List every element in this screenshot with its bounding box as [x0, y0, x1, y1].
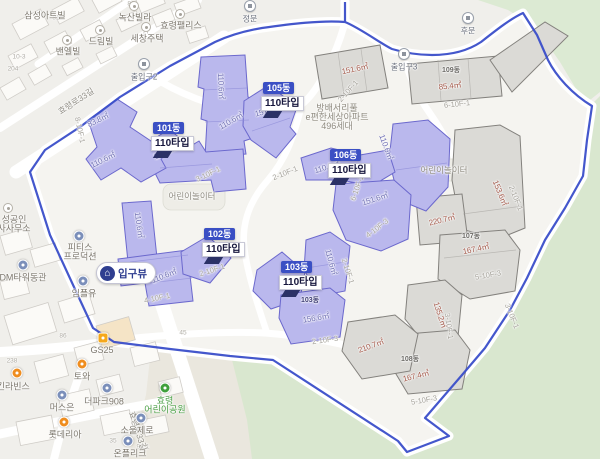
building-number-label: 107동: [462, 231, 480, 241]
poi-label: 효령: [157, 394, 174, 407]
tooltip-pointer: [263, 111, 282, 118]
building-tooltip-101동[interactable]: 101동110타입: [151, 118, 194, 158]
unit-road-label: 3-10F-1: [503, 302, 521, 330]
orange-poi-icon[interactable]: [12, 368, 23, 379]
dot-poi-icon[interactable]: [62, 35, 72, 45]
area-label: 151.6㎡: [361, 190, 390, 209]
unit-road-label: 5-10F-3: [474, 268, 501, 281]
area-label: 110.6㎡: [132, 211, 147, 239]
poi-label: 효령팰리스: [160, 19, 201, 32]
unit-road-label: 6-10F-1: [443, 98, 470, 110]
poi-label: 어린이공원: [144, 403, 185, 416]
poi-label: 롯데리아: [48, 428, 81, 441]
building-tooltip-105동[interactable]: 105동110타입: [261, 78, 304, 118]
blue-poi-icon[interactable]: [18, 260, 29, 271]
unit-road-label: 2-10F-1: [340, 257, 357, 285]
poi-label: 배스킨라빈스: [0, 380, 30, 393]
poi-label: 드림빌: [89, 35, 114, 48]
poi-label: 프로덕션: [63, 250, 96, 263]
poi-label: 피티스: [68, 241, 93, 254]
gate-label: 정문: [243, 14, 258, 25]
orange-poi-icon[interactable]: [77, 359, 88, 370]
area-label: 153.6㎡: [490, 179, 510, 208]
house-number-label: 10-3: [12, 54, 25, 61]
area-label: 167.4㎡: [462, 241, 491, 257]
unit-road-label: 4-10F-3: [364, 216, 390, 239]
tooltip-pointer: [330, 178, 349, 185]
blue-poi-icon[interactable]: [57, 390, 68, 401]
area-label: 220.7㎡: [428, 211, 457, 228]
unit-road-label: 5-10F-3: [410, 393, 437, 406]
orange-poi-icon[interactable]: [59, 417, 70, 428]
dot-poi-icon[interactable]: [175, 9, 185, 19]
area-label: 135.2㎡: [431, 301, 450, 330]
area-label: 110.6㎡: [89, 149, 117, 170]
unit-road-label: 2-10F-1: [507, 184, 525, 212]
entrance-view-pill[interactable]: ⌂ 입구뷰: [96, 262, 156, 284]
gate-icon[interactable]: [398, 48, 410, 60]
area-label: 85.4㎡: [438, 79, 462, 92]
poi-label: 더파크908: [84, 395, 124, 408]
unit-road-label: 4-10F-1: [143, 291, 171, 305]
entrance-pill-label: 입구뷰: [118, 266, 147, 281]
area-label: 110.6㎡: [215, 73, 227, 100]
building-tooltip-103동[interactable]: 103동110타입: [279, 257, 322, 297]
house-number-label: 90-1: [136, 444, 149, 451]
building-number-label: 108동: [401, 354, 419, 364]
gate-label: 출입구2: [131, 72, 158, 83]
tooltip-pointer: [204, 257, 223, 264]
blue-poi-icon[interactable]: [136, 413, 147, 424]
poi-label: DM타워동관: [0, 271, 47, 284]
blue-poi-icon[interactable]: [102, 383, 113, 394]
gate-icon[interactable]: [244, 0, 256, 12]
tooltip-type-label: 110타입: [328, 163, 371, 178]
area-label: 83.8㎡: [85, 110, 110, 130]
poi-label: 토와: [74, 370, 91, 383]
map-labels-layer: 110.6㎡151.6㎡110.6㎡110.6㎡83.8㎡110.6㎡110.6…: [0, 0, 600, 459]
house-number-label: 204: [8, 66, 19, 73]
unit-road-label: 3-10F-1: [194, 164, 222, 184]
building-tooltip-106동[interactable]: 106동110타입: [328, 145, 371, 185]
house-number-label: 86: [59, 333, 66, 340]
area-label: 110.6㎡: [376, 133, 395, 161]
unit-road-label: 3-10F-1: [443, 312, 456, 339]
playground-label: 어린이놀이터: [169, 190, 216, 202]
poi-label: 온플리크: [113, 447, 146, 459]
dot-poi-icon[interactable]: [3, 203, 13, 213]
gate-label: 출입구3: [391, 62, 418, 73]
poi-label: 삼성아트빌: [24, 9, 65, 22]
unit-road-label: 2-10F-3: [311, 334, 338, 347]
gate-icon[interactable]: [138, 58, 150, 70]
tooltip-type-label: 110타입: [151, 136, 194, 151]
gs-poi-icon[interactable]: [98, 333, 109, 344]
tooltip-dong-badge: 102동: [204, 228, 235, 240]
tooltip-dong-badge: 106동: [330, 149, 361, 161]
area-label: 210.7㎡: [357, 336, 386, 356]
unit-road-label: 2-10F-1: [198, 262, 226, 279]
green-poi-icon[interactable]: [160, 383, 171, 394]
poi-label: 소울제로: [120, 424, 153, 437]
blue-poi-icon[interactable]: [123, 436, 134, 447]
tooltip-pointer: [153, 151, 172, 158]
dot-poi-icon[interactable]: [141, 22, 151, 32]
home-icon: ⌂: [100, 266, 115, 281]
poi-label: 머스은: [50, 401, 75, 414]
poi-label: 밴엘빌: [56, 45, 81, 58]
blue-poi-icon[interactable]: [74, 231, 85, 242]
road-name-label: 효령로33길: [56, 85, 97, 117]
complex-name-line: 496세대: [306, 122, 369, 131]
house-number-label: 81: [52, 15, 59, 22]
poi-label: 성공인: [2, 213, 27, 226]
poi-label: GS25: [90, 345, 113, 355]
complex-name: 방배서리풀 e편한세상아파트 496세대: [306, 104, 369, 131]
house-number-label: 238: [7, 358, 18, 365]
tooltip-type-label: 110타입: [261, 96, 304, 111]
area-label: 156.6㎡: [302, 310, 330, 325]
map-canvas[interactable]: 110.6㎡151.6㎡110.6㎡110.6㎡83.8㎡110.6㎡110.6…: [0, 0, 600, 459]
building-tooltip-102동[interactable]: 102동110타입: [202, 224, 245, 264]
area-label: 167.4㎡: [402, 367, 431, 384]
poi-label: 세창주택: [130, 32, 163, 45]
house-number-label: 35: [109, 438, 116, 445]
unit-road-label: 2-10F-1: [336, 78, 360, 104]
area-label: 110.6㎡: [217, 110, 245, 133]
tooltip-type-label: 110타입: [202, 242, 245, 257]
blue-poi-icon[interactable]: [78, 276, 89, 287]
gate-label: 후문: [461, 26, 476, 37]
tooltip-type-label: 110타입: [279, 275, 322, 290]
house-number-label: 45: [179, 330, 186, 337]
tooltip-dong-badge: 103동: [281, 261, 312, 273]
gate-icon[interactable]: [462, 12, 474, 24]
dot-poi-icon[interactable]: [129, 1, 139, 11]
poi-label: 사사무소: [0, 222, 31, 235]
area-label: 110.6㎡: [322, 248, 339, 276]
tooltip-dong-badge: 105동: [263, 82, 294, 94]
tooltip-dong-badge: 101동: [153, 122, 184, 134]
unit-road-label: 2-10F-1: [271, 164, 299, 182]
tooltip-pointer: [281, 290, 300, 297]
poi-label: 임플유: [72, 287, 97, 300]
unit-road-label: 8-10F-1: [73, 116, 87, 144]
area-label: 151.6㎡: [341, 61, 370, 77]
building-number-label: 109동: [442, 65, 460, 75]
dot-poi-icon[interactable]: [95, 25, 105, 35]
playground-label: 어린이놀이터: [421, 164, 468, 176]
